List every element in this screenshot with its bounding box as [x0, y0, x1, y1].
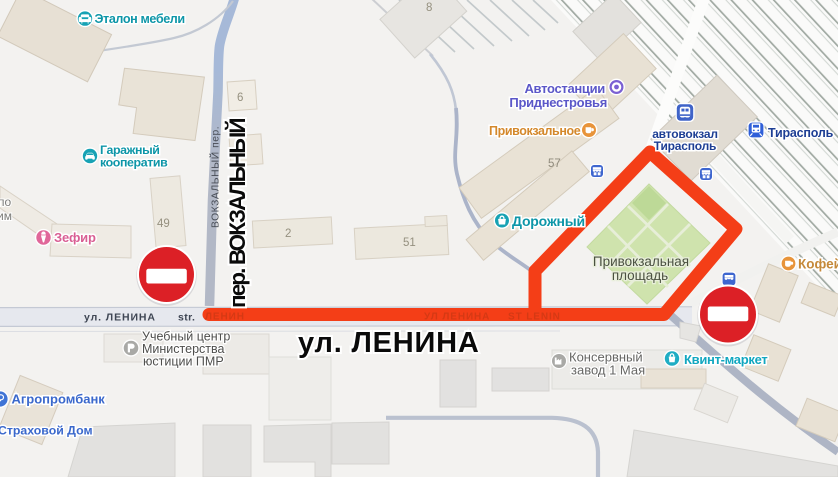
svg-text:6: 6 — [237, 92, 243, 104]
svg-text:Зефир: Зефир — [54, 230, 96, 245]
svg-text:площадь: площадь — [612, 268, 668, 283]
svg-text:ул. ЛЕНИНА: ул. ЛЕНИНА — [84, 312, 156, 324]
svg-text:str.: str. — [178, 312, 195, 324]
svg-text:по: по — [0, 195, 11, 209]
svg-text:57: 57 — [548, 158, 561, 170]
svg-text:Тирасполь: Тирасполь — [654, 139, 716, 153]
svg-text:Дорожный: Дорожный — [512, 213, 585, 229]
svg-text:8: 8 — [426, 2, 432, 14]
svg-text:51: 51 — [403, 237, 416, 249]
svg-text:Эталон мебели: Эталон мебели — [95, 12, 185, 26]
svg-text:Агропромбанк: Агропромбанк — [12, 392, 106, 407]
svg-text:49: 49 — [157, 218, 170, 230]
svg-text:Приднестровья: Приднестровья — [509, 95, 607, 110]
svg-text:Квинт-маркет: Квинт-маркет — [684, 352, 767, 367]
svg-text:ЛЕНИН: ЛЕНИН — [205, 312, 245, 323]
svg-text:Автостанции: Автостанции — [524, 81, 605, 96]
svg-text:2: 2 — [285, 228, 291, 240]
svg-text:Страховой Дом: Страховой Дом — [0, 424, 93, 438]
svg-text:кооператив: кооператив — [100, 156, 168, 170]
svg-text:Кофей: Кофей — [798, 257, 838, 272]
svg-text:ул. ЛЕНИНА: ул. ЛЕНИНА — [298, 327, 480, 359]
svg-text:Привокзальная: Привокзальная — [593, 254, 689, 269]
svg-text:ВОКЗАЛЬНЫЙ пер.: ВОКЗАЛЬНЫЙ пер. — [209, 126, 222, 228]
svg-text:пер. ВОКЗАЛЬНЫЙ: пер. ВОКЗАЛЬНЫЙ — [225, 119, 250, 308]
svg-text:завод 1 Мая: завод 1 Мая — [571, 363, 645, 378]
svg-text:Тирасполь: Тирасполь — [768, 126, 834, 140]
svg-text:им: им — [0, 209, 12, 223]
svg-text:УЛ ЛЕНИНА: УЛ ЛЕНИНА — [424, 312, 490, 323]
svg-text:Привокзальное: Привокзальное — [489, 124, 581, 138]
svg-text:ST LENIN: ST LENIN — [508, 312, 561, 323]
svg-text:юстиции ПМР: юстиции ПМР — [143, 355, 224, 369]
